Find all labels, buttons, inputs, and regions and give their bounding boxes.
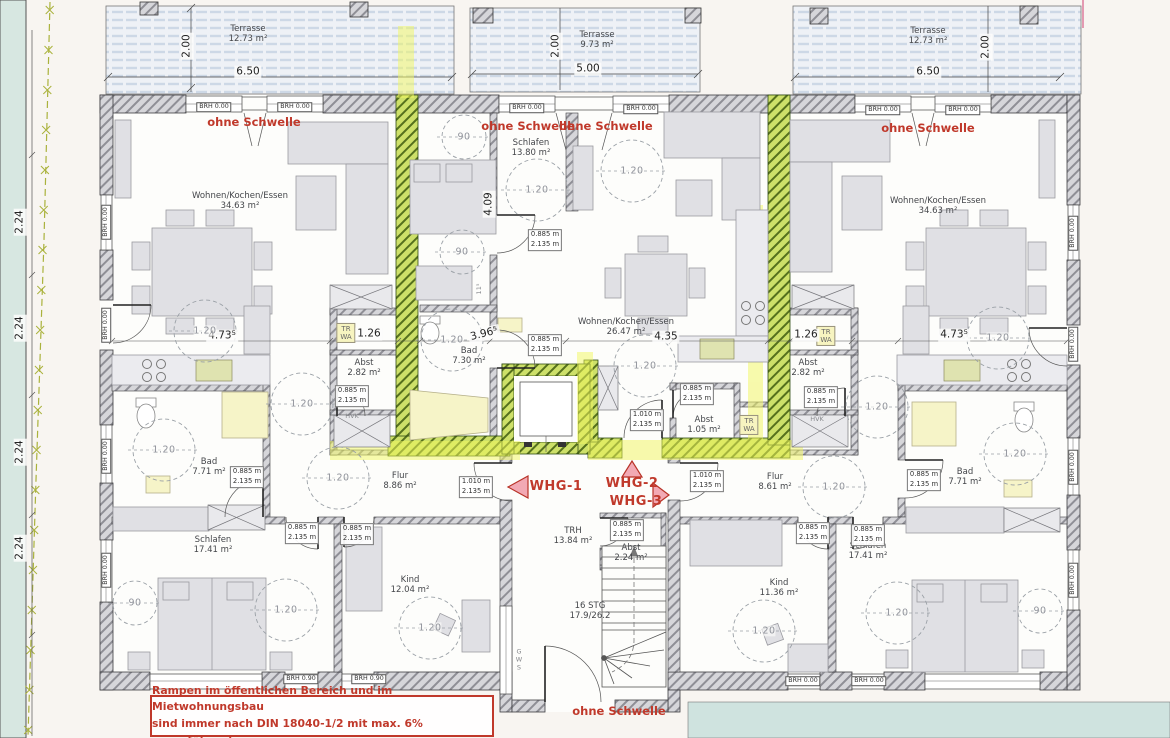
dining-table-mid	[625, 254, 687, 316]
rear-terrace-area	[688, 702, 1170, 738]
walkway-strip	[0, 0, 26, 738]
sideboard-right	[1039, 120, 1055, 198]
sofa-right	[790, 120, 890, 162]
sofa-left	[288, 122, 388, 164]
sofa-mid	[664, 112, 760, 158]
ramp-note-line1: Rampen im öffentlichen Bereich und im Mi…	[152, 683, 492, 716]
sideboard-left	[115, 120, 131, 198]
armchair-left	[296, 176, 336, 230]
elevator	[514, 376, 578, 452]
tv-bench-left	[244, 306, 270, 354]
basin-left	[146, 476, 170, 493]
sink-mid	[700, 339, 734, 359]
wc-right	[1015, 408, 1033, 432]
sink-right	[944, 360, 980, 381]
sideboard-mid	[573, 146, 593, 210]
shower-mid	[410, 390, 488, 440]
tv-bench-right	[903, 306, 929, 354]
plan-drawing	[0, 0, 1170, 738]
ramp-note-line2: sind immer nach DIN 18040-1/2 mit max. 6…	[152, 716, 492, 738]
sink-left	[196, 360, 232, 381]
desk-kind-left	[462, 600, 490, 652]
stairs	[602, 546, 667, 687]
ramp-note: Rampen im öffentlichen Bereich und im Mi…	[150, 695, 494, 737]
shower-left	[222, 392, 268, 438]
ottoman-mid	[676, 180, 712, 216]
desk-kind-right	[788, 644, 828, 672]
wardrobe-schlafen-right	[906, 507, 1004, 533]
wardrobe-schlafen-left	[113, 507, 209, 531]
bed-kind-right	[690, 520, 782, 566]
floor-plan-scan: Terrasse 12.73 m²6.502.00Terrasse 9.73 m…	[0, 0, 1170, 738]
dining-table-right	[926, 228, 1026, 316]
terraces	[104, 2, 1081, 94]
wardrobe-mid	[416, 266, 472, 300]
shower-right	[912, 402, 956, 446]
dining-table-left	[152, 228, 252, 316]
armchair-right	[842, 176, 882, 230]
